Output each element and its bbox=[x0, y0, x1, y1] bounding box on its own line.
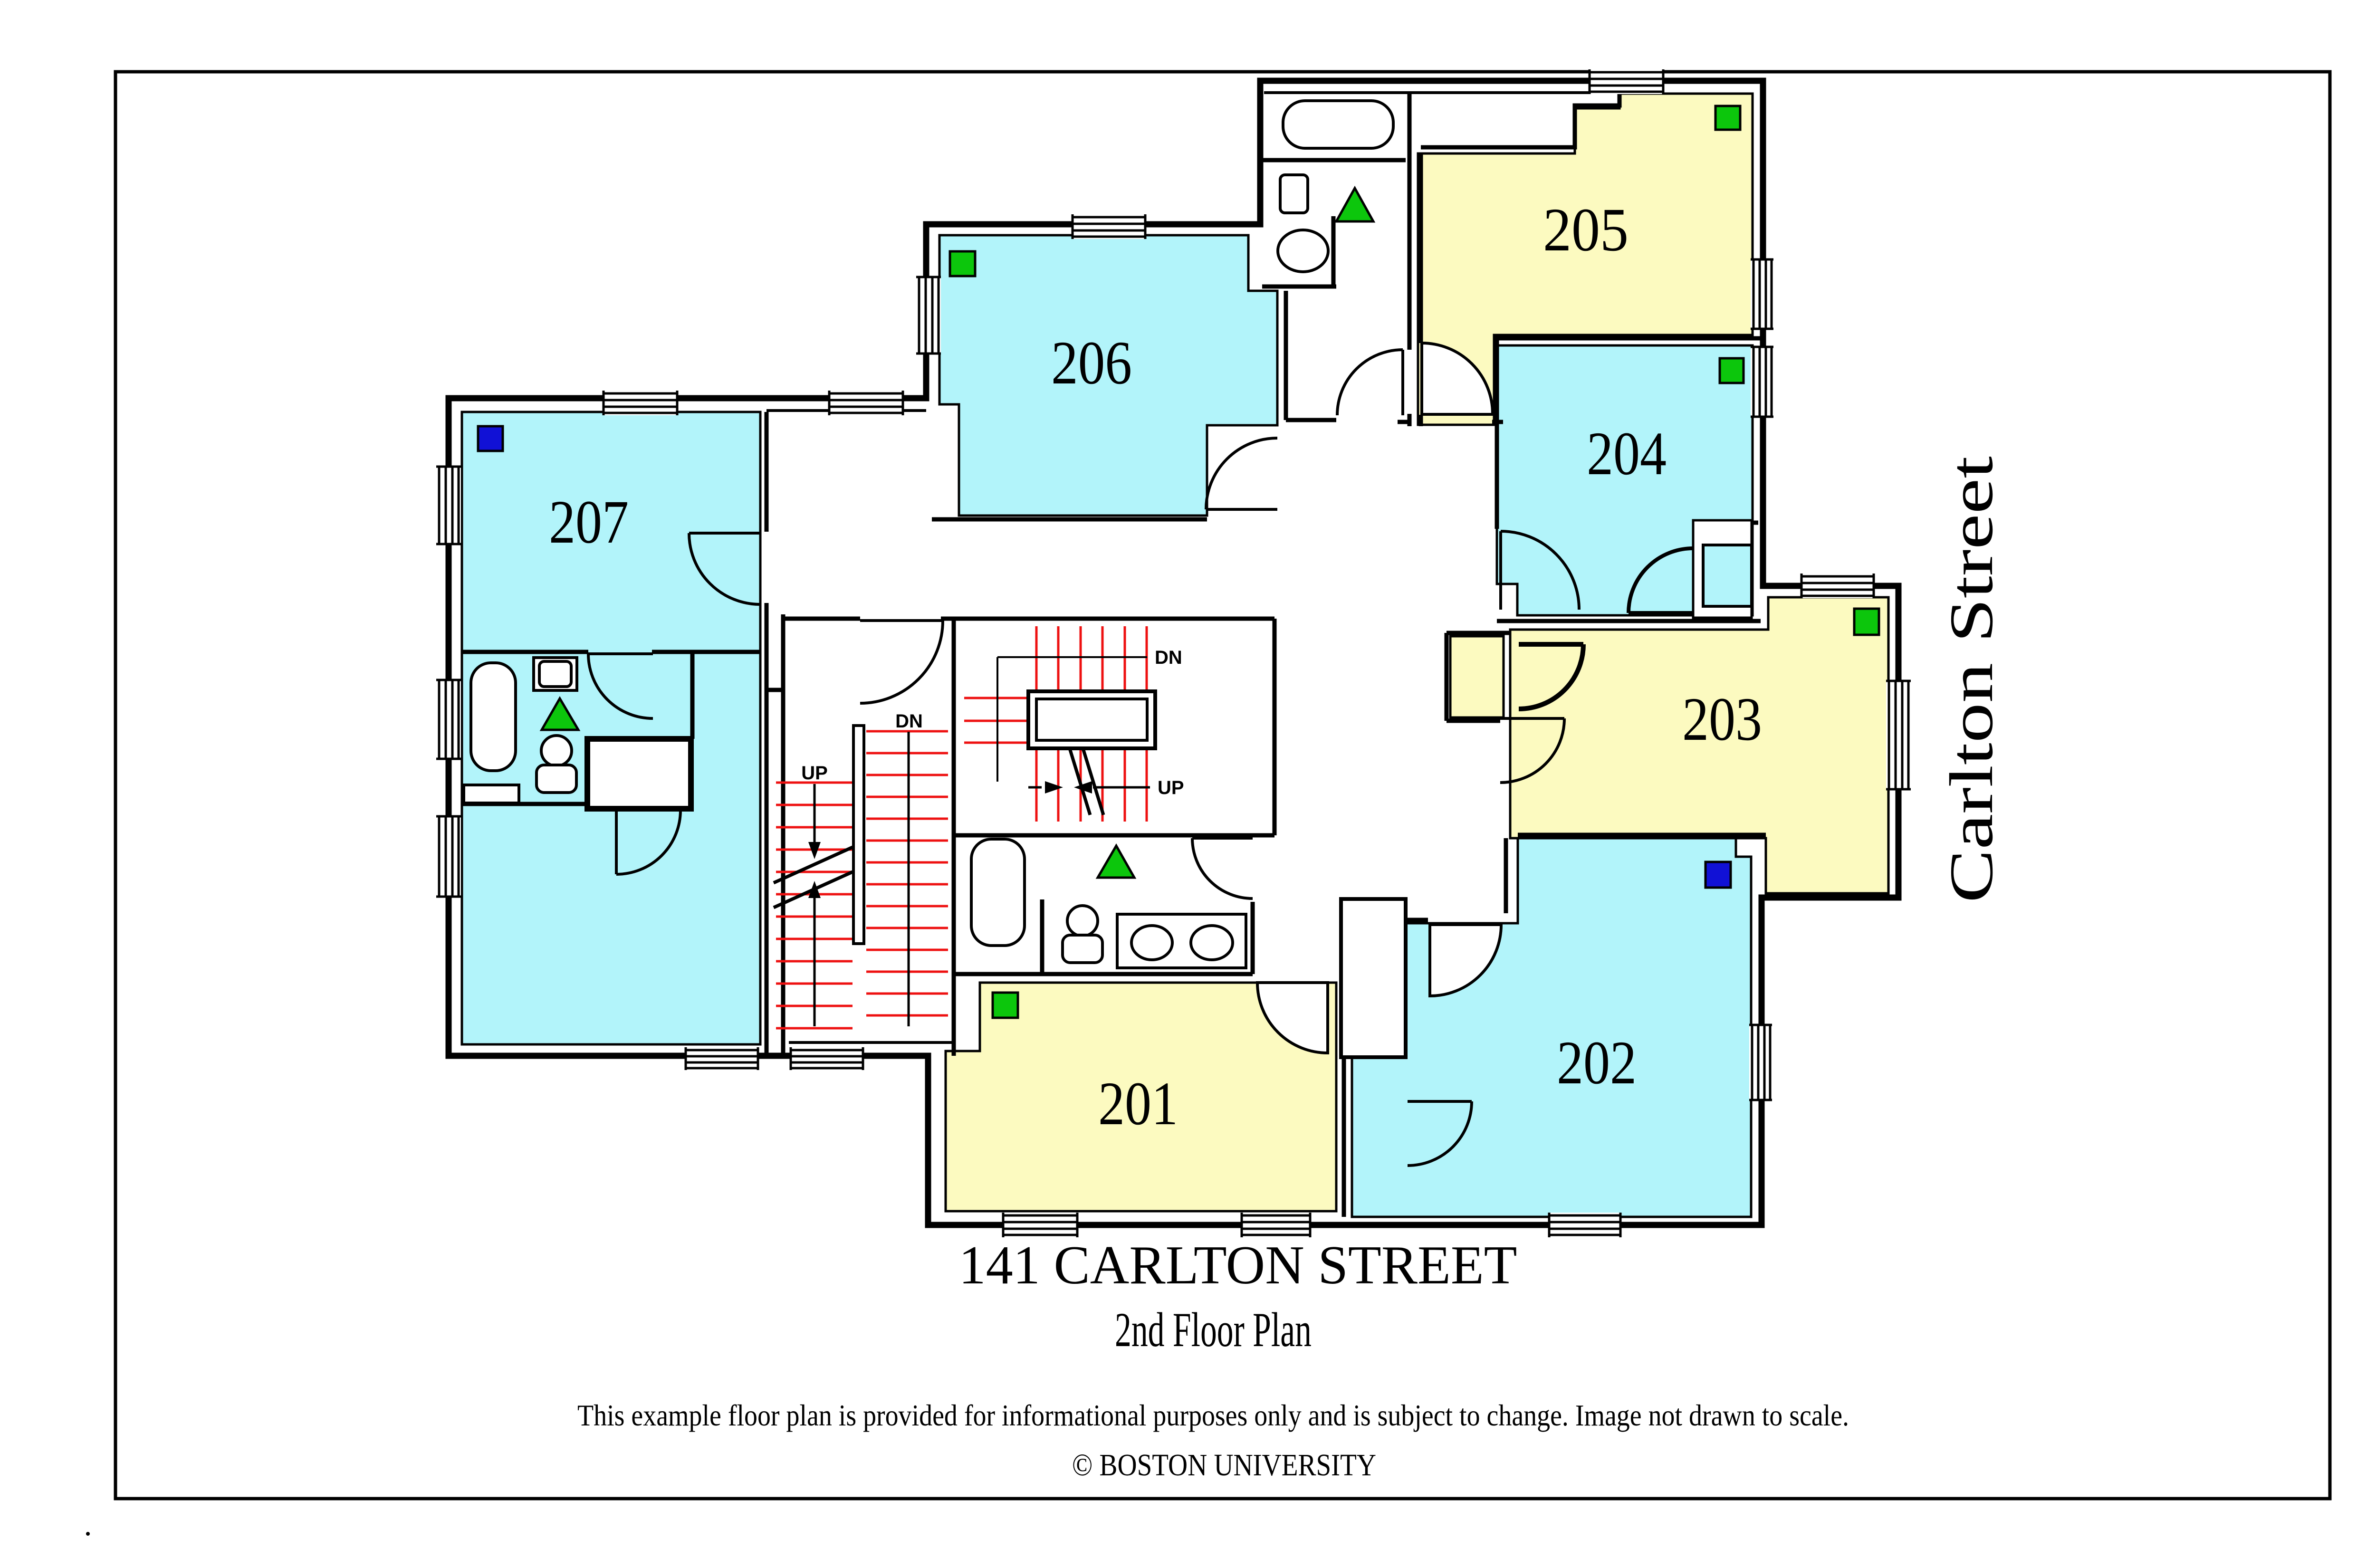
svg-text:This example floor plan is pro: This example floor plan is provided for … bbox=[577, 1398, 1849, 1432]
svg-text:206: 206 bbox=[1051, 329, 1132, 397]
svg-text:205: 205 bbox=[1543, 196, 1629, 264]
svg-text:203: 203 bbox=[1682, 685, 1762, 754]
svg-text:201: 201 bbox=[1098, 1070, 1178, 1138]
svg-text:207: 207 bbox=[549, 488, 629, 556]
svg-text:2nd Floor Plan: 2nd Floor Plan bbox=[1115, 1303, 1312, 1357]
svg-text:DN: DN bbox=[1155, 647, 1182, 668]
svg-text:204: 204 bbox=[1587, 420, 1667, 488]
svg-text:202: 202 bbox=[1557, 1029, 1637, 1097]
svg-text:UP: UP bbox=[1158, 777, 1184, 798]
svg-text:© BOSTON UNIVERSITY: © BOSTON UNIVERSITY bbox=[1072, 1448, 1376, 1482]
svg-text:DN: DN bbox=[895, 711, 923, 732]
svg-text:UP: UP bbox=[801, 763, 828, 784]
svg-text:Carlton Street: Carlton Street bbox=[1937, 456, 2006, 903]
svg-text:141 CARLTON STREET: 141 CARLTON STREET bbox=[959, 1235, 1517, 1295]
